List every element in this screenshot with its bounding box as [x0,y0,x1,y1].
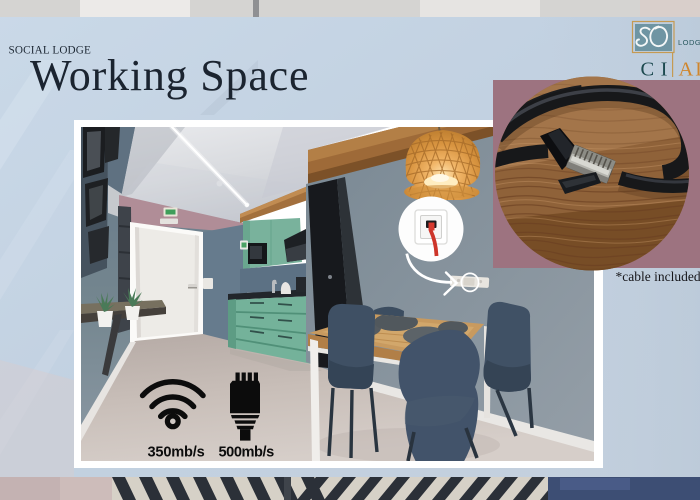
svg-text:Working Space: Working Space [30,51,309,100]
svg-text:*cable included: *cable included [616,269,700,284]
svg-text:LODGE: LODGE [678,38,700,47]
svg-text:AL: AL [679,59,700,81]
svg-text:500mb/s: 500mb/s [219,445,275,461]
svg-text:350mb/s: 350mb/s [148,445,205,461]
svg-text:CI: CI [641,59,675,81]
